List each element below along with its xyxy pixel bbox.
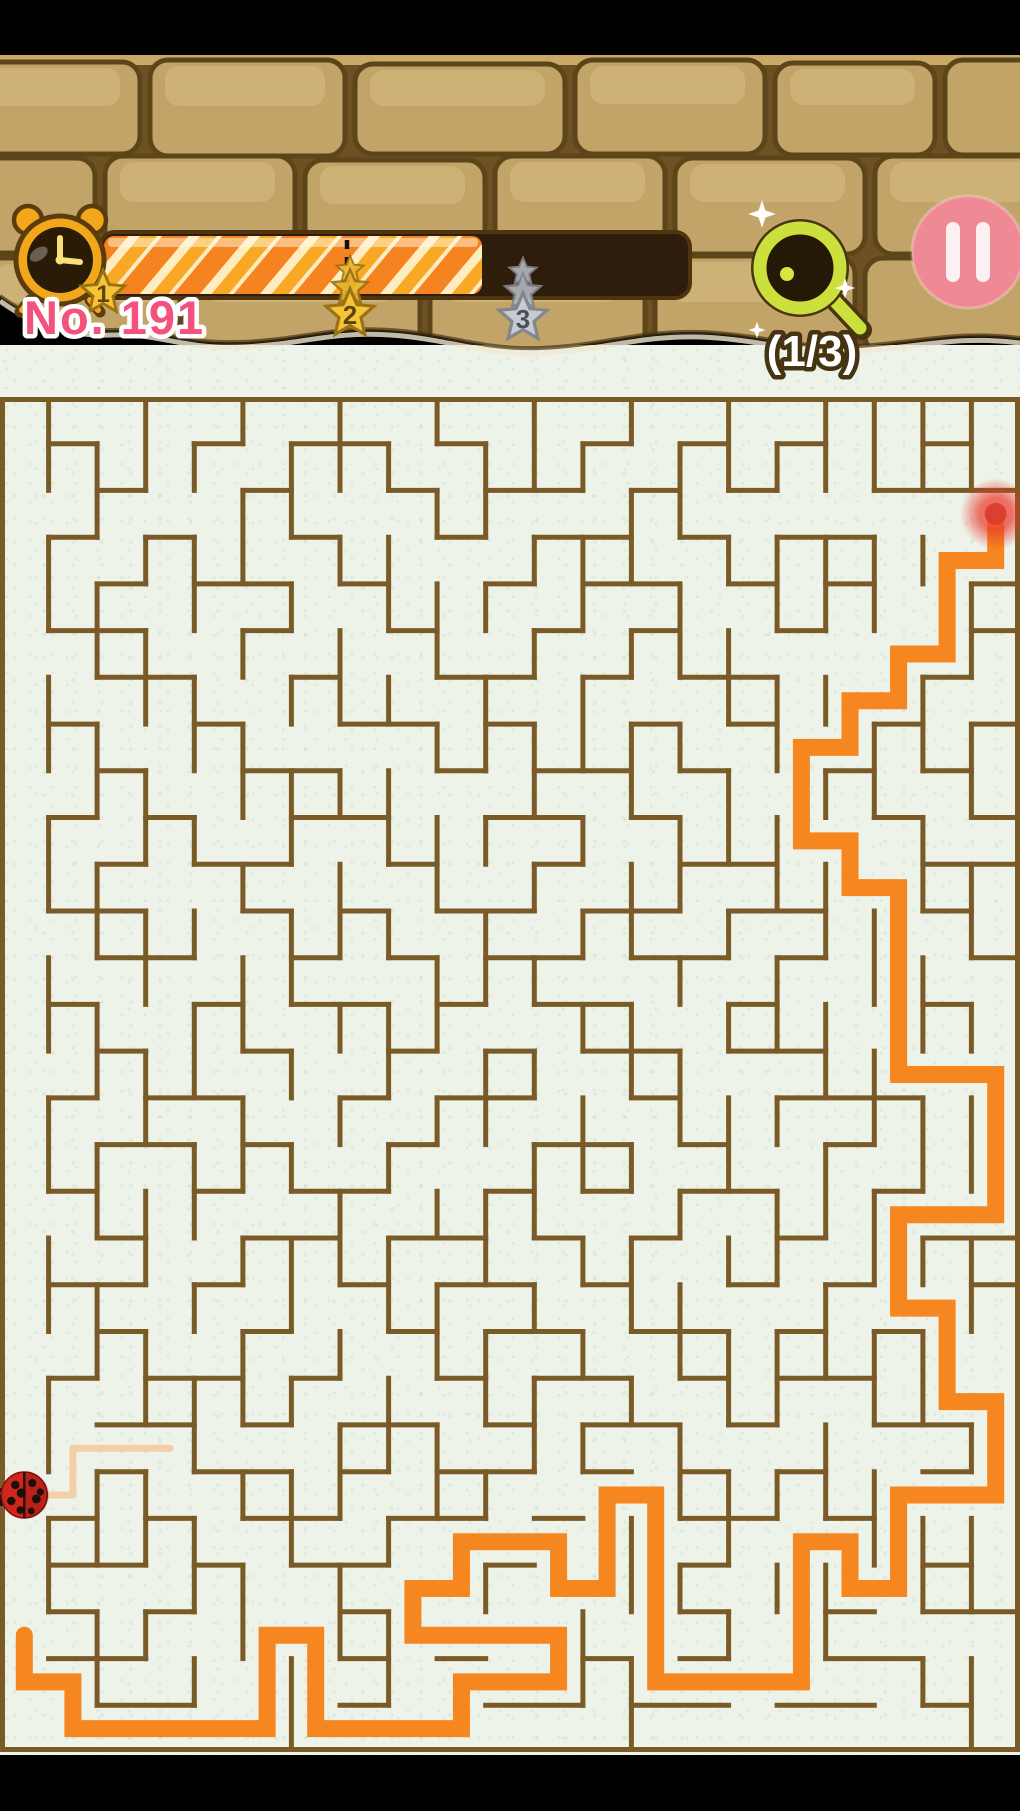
hint-counter: (1/3) (767, 327, 857, 376)
game-screen: 1 2 3 No. 191 (1/3) (0, 0, 1020, 1811)
star2-number: 2 (343, 300, 357, 330)
progress-gloss (108, 238, 478, 247)
solution-path-hint (24, 514, 995, 1729)
header-bar: 1 2 3 No. 191 (1/3) (0, 0, 1020, 400)
ladybug-player[interactable] (0, 1472, 49, 1518)
pause-button[interactable] (912, 196, 1020, 308)
progress-bar (100, 232, 690, 298)
star3-number: 3 (516, 304, 530, 334)
level-number: No. 191 (24, 291, 205, 344)
